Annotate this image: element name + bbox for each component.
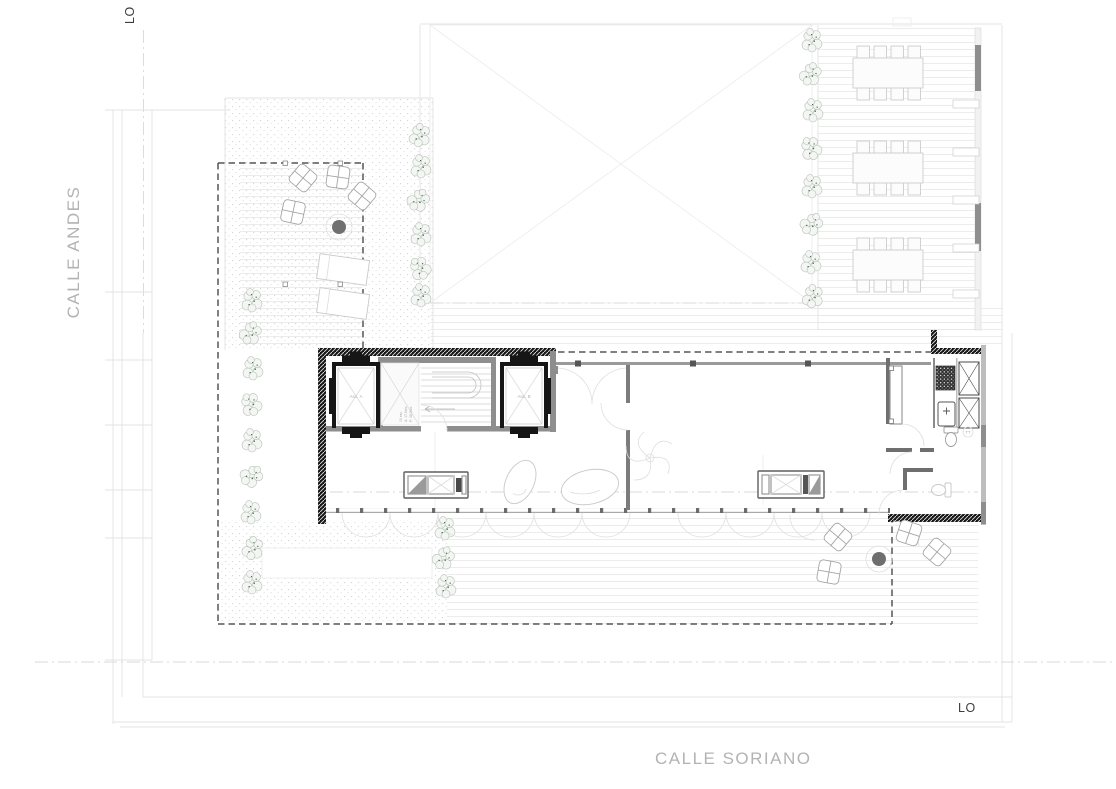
toilet [944,427,958,447]
deck-midband [430,306,1002,348]
plant [626,432,672,480]
stair-note-2: A: 17,5cm [404,407,408,422]
core-double-door [554,366,630,404]
refrigerator-cabinets [959,362,979,428]
sideboard [404,472,468,498]
egg-chair [498,455,543,509]
elevator-a: Asc. A [329,352,380,439]
beanbag-chair [280,199,306,225]
toilet-faint [932,483,952,497]
stair-direction-arrow [425,406,455,412]
street-label-bottom: CALLE SORIANO [655,749,812,768]
sink [938,402,955,426]
stair: 15 esc. A: 17,5cm P: 28,5cm [381,363,491,432]
elevator-b-label: Asc. B [517,394,530,399]
partition-wall [626,365,630,403]
lot-marker-bottom: LO [958,701,976,715]
wall-west [318,348,326,524]
paving-textures [217,28,1002,624]
glass-wall-south [326,508,890,513]
stove [936,366,955,390]
east-wing-interior [404,365,824,510]
round-table [332,220,346,234]
lot-marker-top: LO [123,6,137,24]
counter-edge [933,358,935,428]
fixture-label: TT [966,430,971,435]
patio-void-below [430,25,812,303]
sideboard [758,471,824,498]
kitchen-bath-block: TT [879,358,979,514]
closet [890,366,902,424]
street-label-left: CALLE ANDES [64,186,83,319]
plan-canvas: Asc. A Asc. B 15 esc. A: 17,5 [0,0,1116,789]
planter-band [262,548,432,578]
elevator-b: Asc. B [500,352,551,439]
partition-wall [626,430,630,510]
beanbag-chair [816,559,841,584]
wall-pier [975,45,981,91]
floor-plan-page: { "plan": { "title": "roof / terrace lev… [0,0,1116,789]
stair-note-1: 15 esc. [399,411,403,422]
bean-sofa [558,464,622,509]
beanbag-chair [326,165,351,190]
round-table [872,552,886,566]
stair-handrail [432,372,481,398]
glass-wall-north [556,362,931,365]
stair-note-3: P: 28,5cm [409,407,413,422]
wall-north-kitchen [931,348,986,354]
elevator-a-label: Asc. A [349,394,363,399]
